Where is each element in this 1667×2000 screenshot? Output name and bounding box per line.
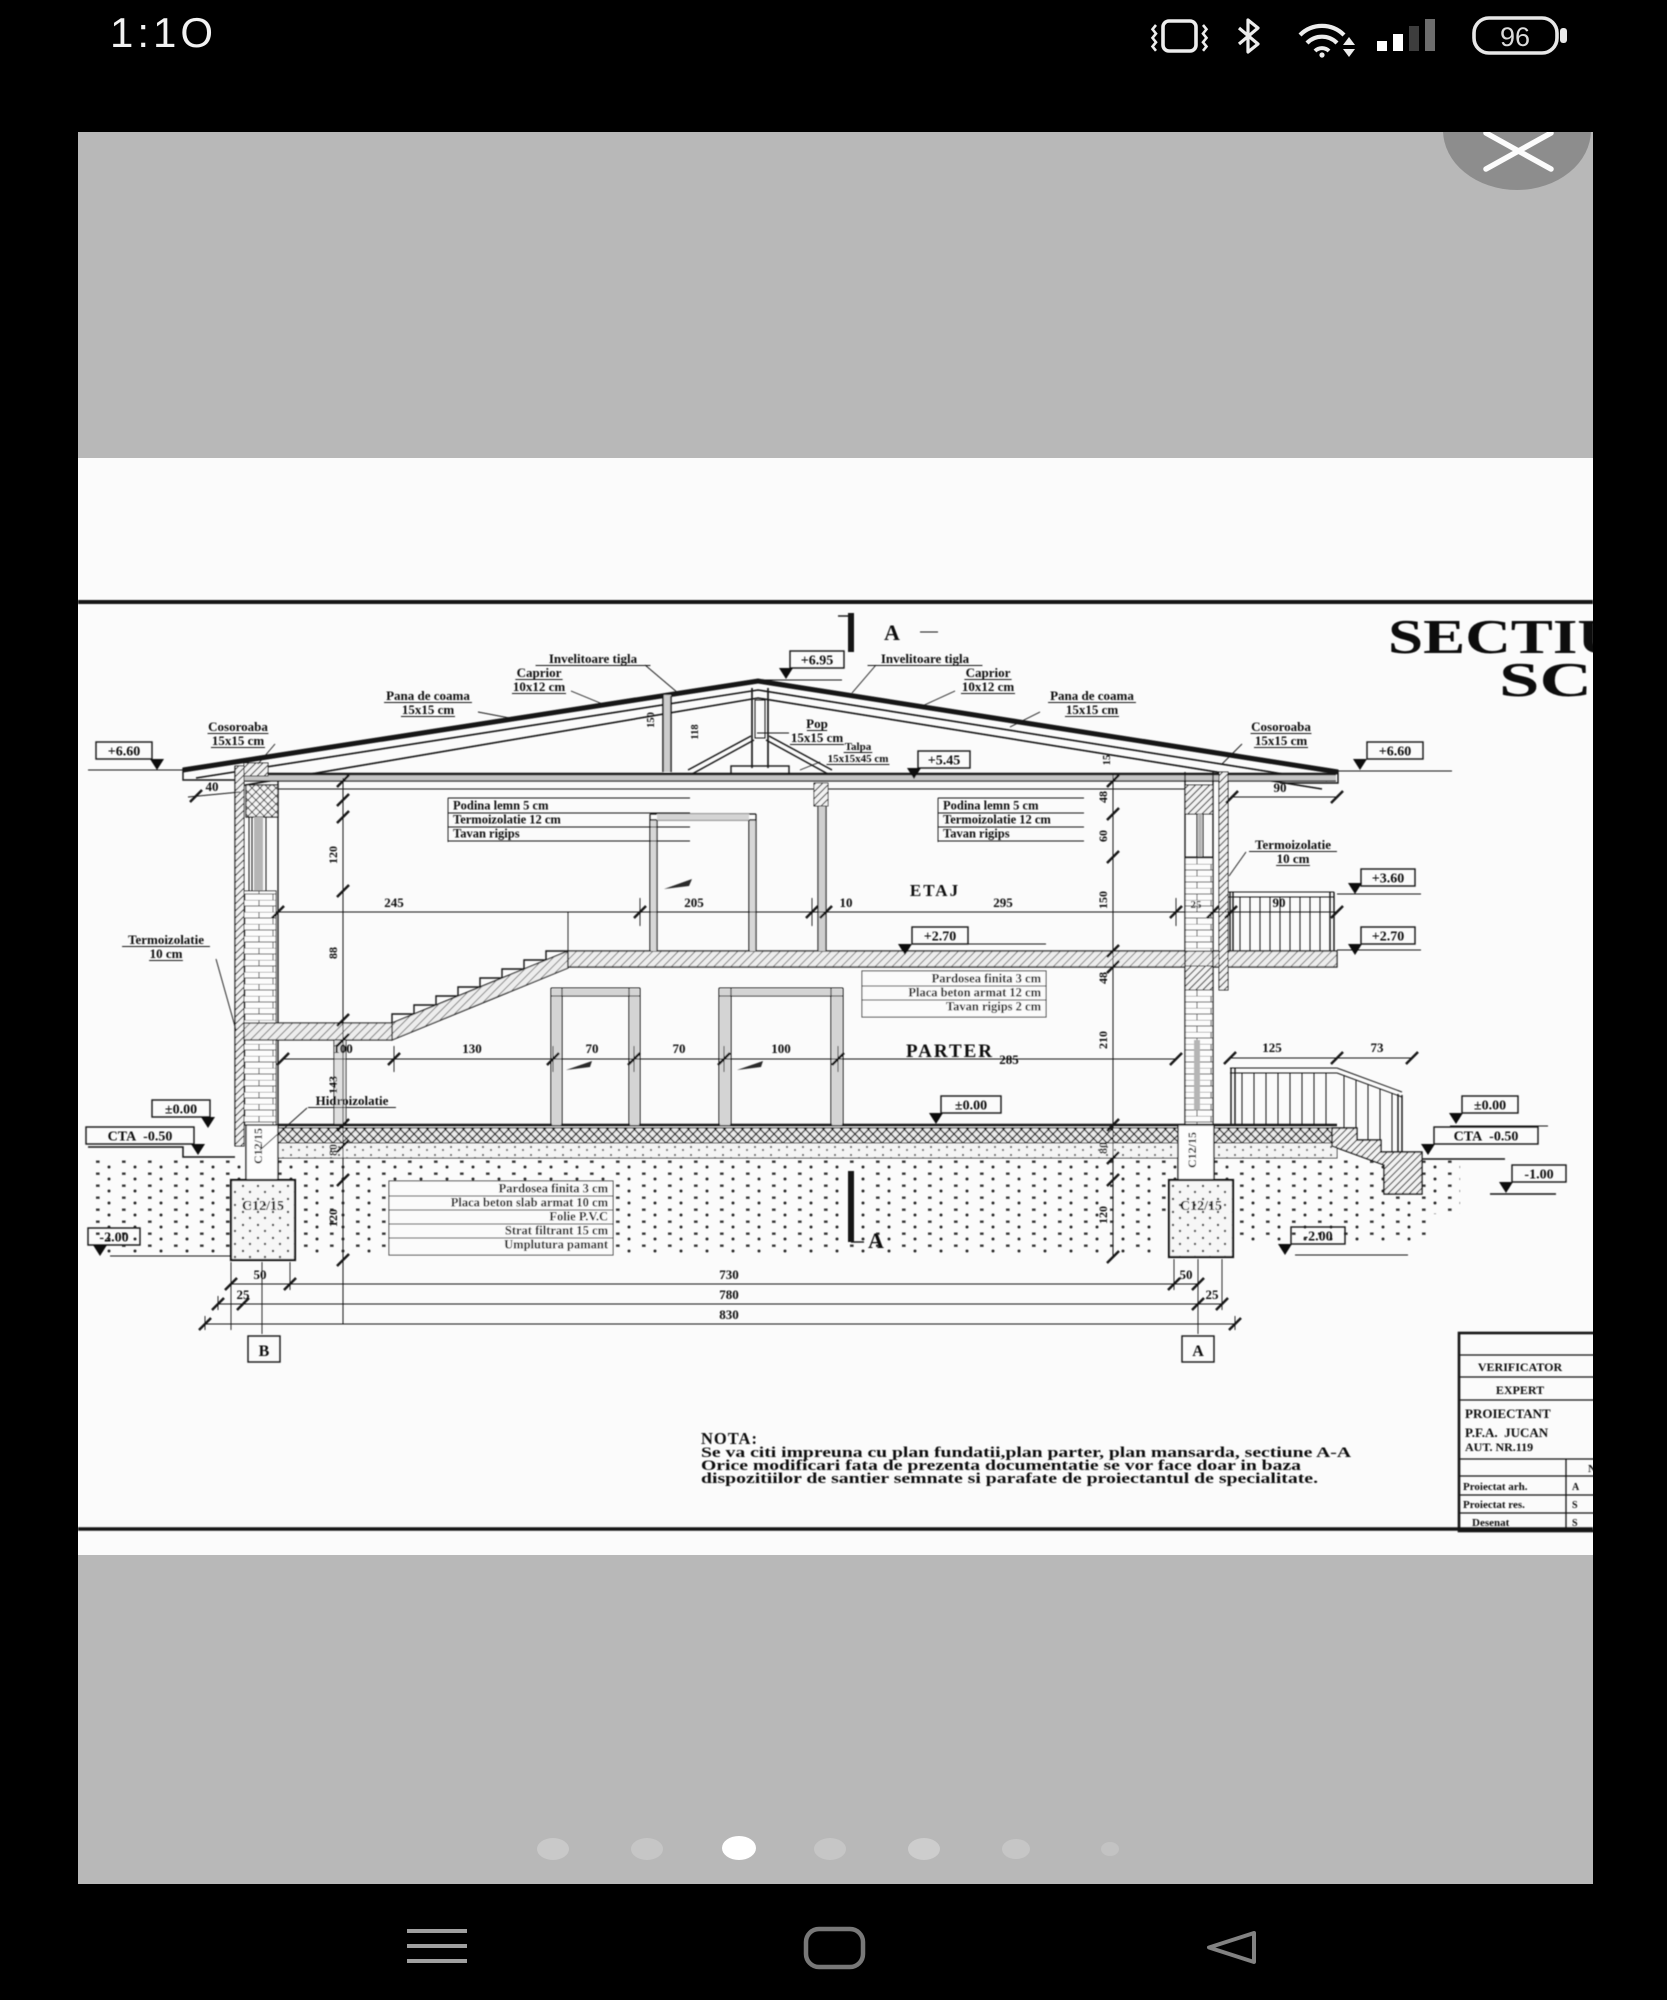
svg-text:96: 96 [1500,22,1530,52]
svg-text:88: 88 [326,947,340,959]
svg-text:Hidroizolatie: Hidroizolatie [316,1093,389,1108]
svg-text:-2.00: -2.00 [99,1231,128,1246]
svg-text:205: 205 [684,895,704,910]
svg-text:Termoizolatie: Termoizolatie [1255,837,1331,852]
svg-text:Proiectat res.: Proiectat res. [1463,1499,1525,1511]
svg-text:C12/15: C12/15 [1180,1199,1222,1214]
svg-text:90: 90 [1274,780,1287,795]
svg-text:150: 150 [1096,891,1110,909]
svg-text:+6.95: +6.95 [801,654,833,669]
svg-text:±0.00: ±0.00 [955,1099,987,1114]
svg-text:Cosoroaba: Cosoroaba [1251,719,1311,734]
svg-text:Placa beton slab armat 10 cm: Placa beton slab armat 10 cm [451,1196,609,1210]
svg-text:PROIECTANT: PROIECTANT [1465,1406,1551,1421]
svg-text:dispozitiilor de santier semna: dispozitiilor de santier semnate si para… [701,1471,1318,1487]
svg-text:±0.00: ±0.00 [165,1103,197,1118]
svg-text:120: 120 [326,1209,340,1227]
svg-text:Pardosea finita 3 cm: Pardosea finita 3 cm [499,1182,609,1196]
svg-text:150: 150 [646,712,657,728]
svg-text:10 cm: 10 cm [150,946,183,961]
svg-text:40: 40 [206,779,219,794]
svg-text:CTA -0.50: CTA -0.50 [108,1130,173,1145]
svg-text:+5.45: +5.45 [928,754,960,769]
svg-text:+3.60: +3.60 [1372,872,1404,887]
svg-text:A: A [1192,1343,1204,1360]
svg-text:730: 730 [719,1267,739,1282]
svg-text:C12/15: C12/15 [242,1199,284,1214]
svg-text:Cosoroaba: Cosoroaba [208,719,268,734]
svg-text:60: 60 [1096,830,1110,842]
svg-text:295: 295 [993,895,1013,910]
svg-text:P.F.A. JUCAN: P.F.A. JUCAN [1465,1425,1549,1440]
svg-text:Umplutura pamant: Umplutura pamant [504,1238,609,1252]
svg-text:48: 48 [1096,972,1110,984]
svg-text:B: B [259,1343,270,1360]
svg-text:Podina lemn 5 cm: Podina lemn 5 cm [943,799,1039,813]
svg-text:15: 15 [1102,755,1113,766]
svg-text:ETAJ: ETAJ [910,881,960,900]
svg-text:70: 70 [586,1041,599,1056]
svg-text:Placa beton armat 12 cm: Placa beton armat 12 cm [908,986,1041,1000]
svg-text:Pana de coama: Pana de coama [386,688,470,703]
svg-text:Invelitoare tigla: Invelitoare tigla [881,651,970,666]
svg-text:10: 10 [840,895,853,910]
svg-text:780: 780 [719,1287,739,1302]
svg-text:15x15 cm: 15x15 cm [791,730,844,745]
svg-text:EXPERT: EXPERT [1496,1383,1544,1397]
svg-text:70: 70 [673,1041,686,1056]
svg-text:Invelitoare tigla: Invelitoare tigla [549,651,638,666]
svg-text:80: 80 [326,1144,340,1156]
svg-text:+6.60: +6.60 [108,745,140,760]
svg-text:50: 50 [254,1267,267,1282]
svg-text:15x15 cm: 15x15 cm [402,702,455,717]
svg-text:Tavan rigips: Tavan rigips [943,827,1010,841]
svg-text:50: 50 [1180,1267,1193,1282]
svg-text:80: 80 [1096,1142,1110,1154]
svg-text:+2.70: +2.70 [924,930,956,945]
svg-text:15x15 cm: 15x15 cm [1255,733,1308,748]
svg-text:100: 100 [771,1041,791,1056]
svg-text:25: 25 [237,1287,251,1302]
svg-text:48: 48 [1096,791,1110,803]
svg-text:Desenat: Desenat [1472,1517,1510,1529]
svg-text:25: 25 [1191,899,1203,911]
svg-text:Caprior: Caprior [966,665,1011,680]
svg-text:Pop: Pop [806,716,828,731]
svg-text:120: 120 [1096,1206,1110,1224]
svg-text:Termoizolatie 12 cm: Termoizolatie 12 cm [453,813,561,827]
svg-text:AUT. NR.119: AUT. NR.119 [1465,1440,1533,1454]
svg-text:A: A [868,1228,884,1253]
svg-text:Pana de coama: Pana de coama [1050,688,1134,703]
svg-text:25: 25 [1206,1287,1220,1302]
svg-text:118: 118 [690,724,701,739]
svg-text:143: 143 [326,1076,340,1094]
svg-text:73: 73 [1371,1040,1385,1055]
svg-text:±0.00: ±0.00 [1474,1099,1506,1114]
svg-text:-1.00: -1.00 [1524,1168,1553,1183]
svg-text:120: 120 [326,846,340,864]
svg-text:Proiectat arh.: Proiectat arh. [1463,1481,1528,1493]
svg-text:Termoizolatie 12 cm: Termoizolatie 12 cm [943,813,1051,827]
svg-text:Podina lemn 5 cm: Podina lemn 5 cm [453,799,549,813]
svg-text:Talpa: Talpa [845,741,872,753]
svg-text:+6.60: +6.60 [1379,745,1411,760]
svg-text:Strat filtrant 15 cm: Strat filtrant 15 cm [505,1224,609,1238]
svg-text:130: 130 [462,1041,482,1056]
svg-text:Folie P.V.C: Folie P.V.C [549,1210,608,1224]
svg-text:830: 830 [719,1307,739,1322]
svg-text:Pardosea finita 3 cm: Pardosea finita 3 cm [932,972,1042,986]
svg-text:VERIFICATOR: VERIFICATOR [1478,1360,1563,1374]
svg-text:PARTER: PARTER [906,1041,994,1062]
svg-text:285: 285 [999,1052,1019,1067]
svg-text:SC: SC [1499,652,1592,707]
svg-text:Caprior: Caprior [517,665,562,680]
svg-text:+2.70: +2.70 [1372,930,1404,945]
svg-text:210: 210 [1096,1031,1110,1049]
svg-text:S: S [1572,1518,1578,1529]
svg-text:10x12 cm: 10x12 cm [962,679,1015,694]
svg-text:Tavan rigips: Tavan rigips [453,827,520,841]
svg-text:10x12 cm: 10x12 cm [513,679,566,694]
svg-text:15x15 cm: 15x15 cm [1066,702,1119,717]
svg-text:A: A [1572,1482,1580,1493]
svg-text:CTA -0.50: CTA -0.50 [1454,1130,1519,1145]
svg-text:125: 125 [1262,1040,1282,1055]
svg-text:A: A [884,620,900,645]
svg-text:1:1O: 1:1O [110,9,217,56]
svg-text:Termoizolatie: Termoizolatie [128,932,204,947]
svg-text:15x15x45 cm: 15x15x45 cm [828,753,889,765]
svg-text:Tavan rigips 2 cm: Tavan rigips 2 cm [946,1000,1042,1014]
svg-text:-2.00: -2.00 [1303,1230,1332,1245]
svg-text:245: 245 [384,895,404,910]
svg-text:90: 90 [1273,895,1286,910]
svg-text:C12/15: C12/15 [1185,1132,1199,1168]
svg-text:C12/15: C12/15 [251,1128,265,1164]
svg-text:S: S [1572,1500,1578,1511]
svg-text:10 cm: 10 cm [1277,851,1310,866]
svg-text:15x15 cm: 15x15 cm [212,733,265,748]
